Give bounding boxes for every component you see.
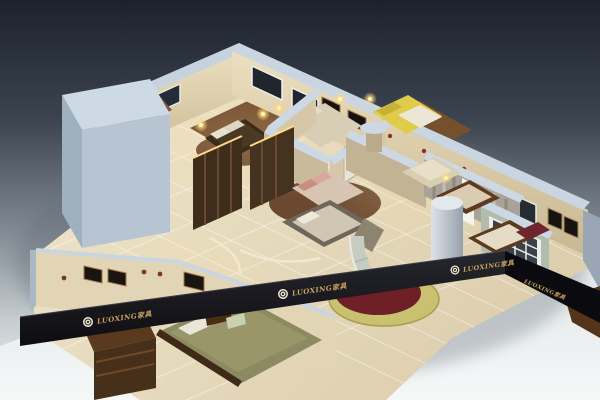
wall-sconce-icon — [158, 272, 163, 277]
wall-sconce-icon — [422, 149, 426, 153]
render-canvas: LUOXING家具 LUOXING家具 LUOXING家具 LUOXING家具 — [0, 0, 600, 400]
showroom-render: LUOXING家具 LUOXING家具 LUOXING家具 LUOXING家具 — [0, 0, 600, 400]
wall-sconce-icon — [388, 134, 392, 138]
wall-sconce-icon — [62, 276, 67, 281]
wall-sconce-icon — [142, 270, 147, 275]
balcony-block-front — [82, 114, 170, 248]
balcony — [62, 79, 172, 248]
